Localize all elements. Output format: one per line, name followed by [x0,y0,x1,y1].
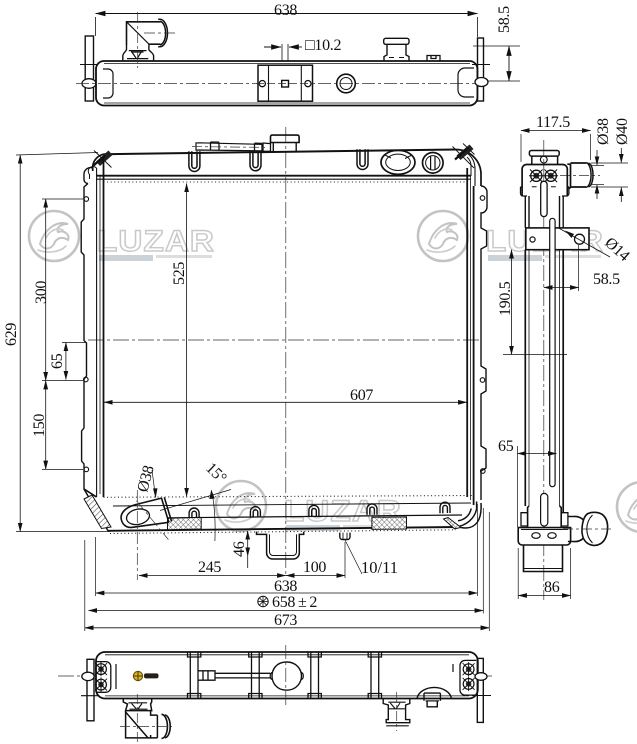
svg-text:117.5: 117.5 [536,114,570,131]
svg-text:LUZAR: LUZAR [97,225,215,258]
svg-text:629: 629 [3,323,20,346]
svg-text:58.5: 58.5 [496,6,513,33]
svg-text:65: 65 [49,353,66,369]
svg-text:46: 46 [231,541,248,557]
svg-text:300: 300 [33,281,50,304]
svg-text:65: 65 [498,438,514,455]
svg-text:Ø40: Ø40 [614,118,631,145]
svg-text:100: 100 [303,559,326,576]
svg-text:607: 607 [350,387,373,404]
svg-text:638: 638 [274,2,297,19]
svg-text:10/11: 10/11 [361,558,398,577]
svg-text:245: 245 [198,559,221,576]
svg-text:525: 525 [171,262,188,285]
svg-text:658 ± 2: 658 ± 2 [272,594,317,611]
svg-text:58.5: 58.5 [593,271,620,288]
svg-text:673: 673 [274,612,297,629]
svg-text:Ø38: Ø38 [595,118,612,145]
svg-text:86: 86 [544,579,560,596]
svg-text:638: 638 [274,578,297,595]
svg-text:□10.2: □10.2 [305,37,341,54]
